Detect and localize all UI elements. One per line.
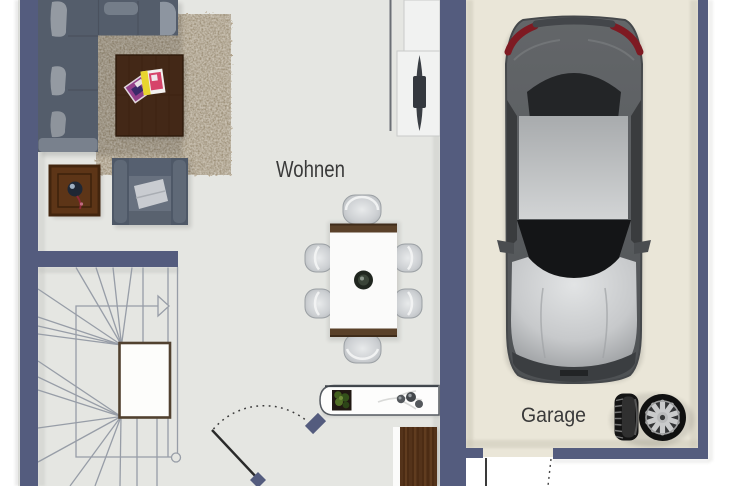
svg-text:Garage: Garage [521, 404, 586, 427]
svg-text:Wohnen: Wohnen [276, 156, 345, 182]
